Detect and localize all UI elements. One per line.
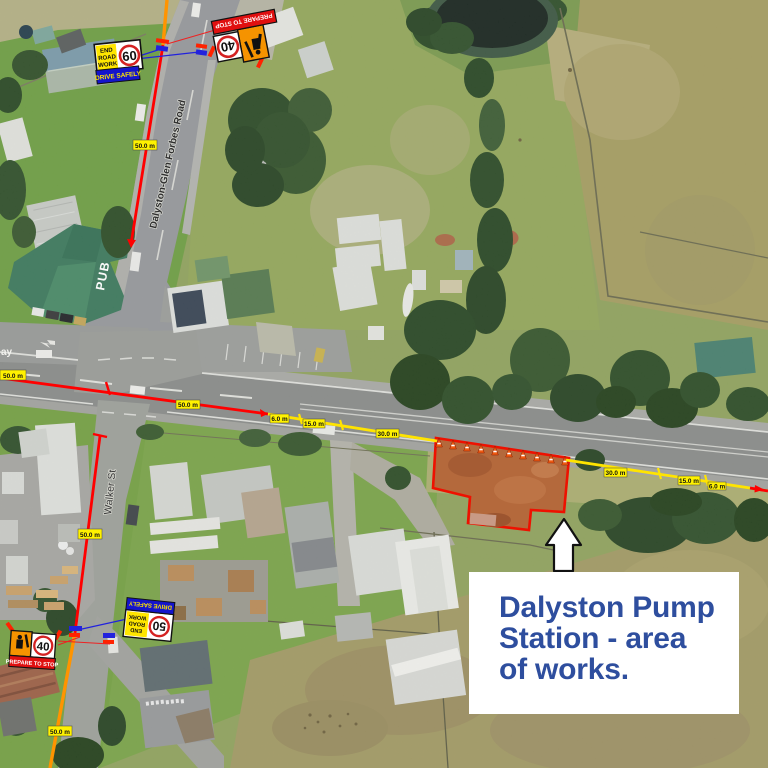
svg-text:of works.: of works. [499, 653, 629, 686]
svg-text:30.0 m: 30.0 m [378, 431, 398, 438]
svg-text:50.0 m: 50.0 m [178, 402, 198, 409]
svg-text:15.0 m: 15.0 m [304, 421, 324, 428]
svg-text:60: 60 [122, 48, 138, 64]
svg-text:40: 40 [36, 641, 50, 654]
svg-text:ay: ay [1, 347, 13, 358]
svg-text:50.0 m: 50.0 m [3, 373, 23, 380]
svg-text:Station - area: Station - area [499, 622, 687, 655]
svg-text:50: 50 [152, 618, 167, 633]
svg-text:50.0 m: 50.0 m [135, 143, 155, 150]
svg-text:15.0 m: 15.0 m [679, 478, 699, 485]
svg-text:30.0 m: 30.0 m [606, 470, 626, 477]
svg-text:50.0 m: 50.0 m [80, 532, 100, 539]
svg-text:Dalyston Pump: Dalyston Pump [499, 591, 715, 624]
svg-text:6.0 m: 6.0 m [271, 416, 288, 423]
svg-text:50.0 m: 50.0 m [50, 729, 70, 736]
svg-text:40: 40 [219, 38, 236, 55]
svg-text:6.0 m: 6.0 m [709, 484, 726, 491]
